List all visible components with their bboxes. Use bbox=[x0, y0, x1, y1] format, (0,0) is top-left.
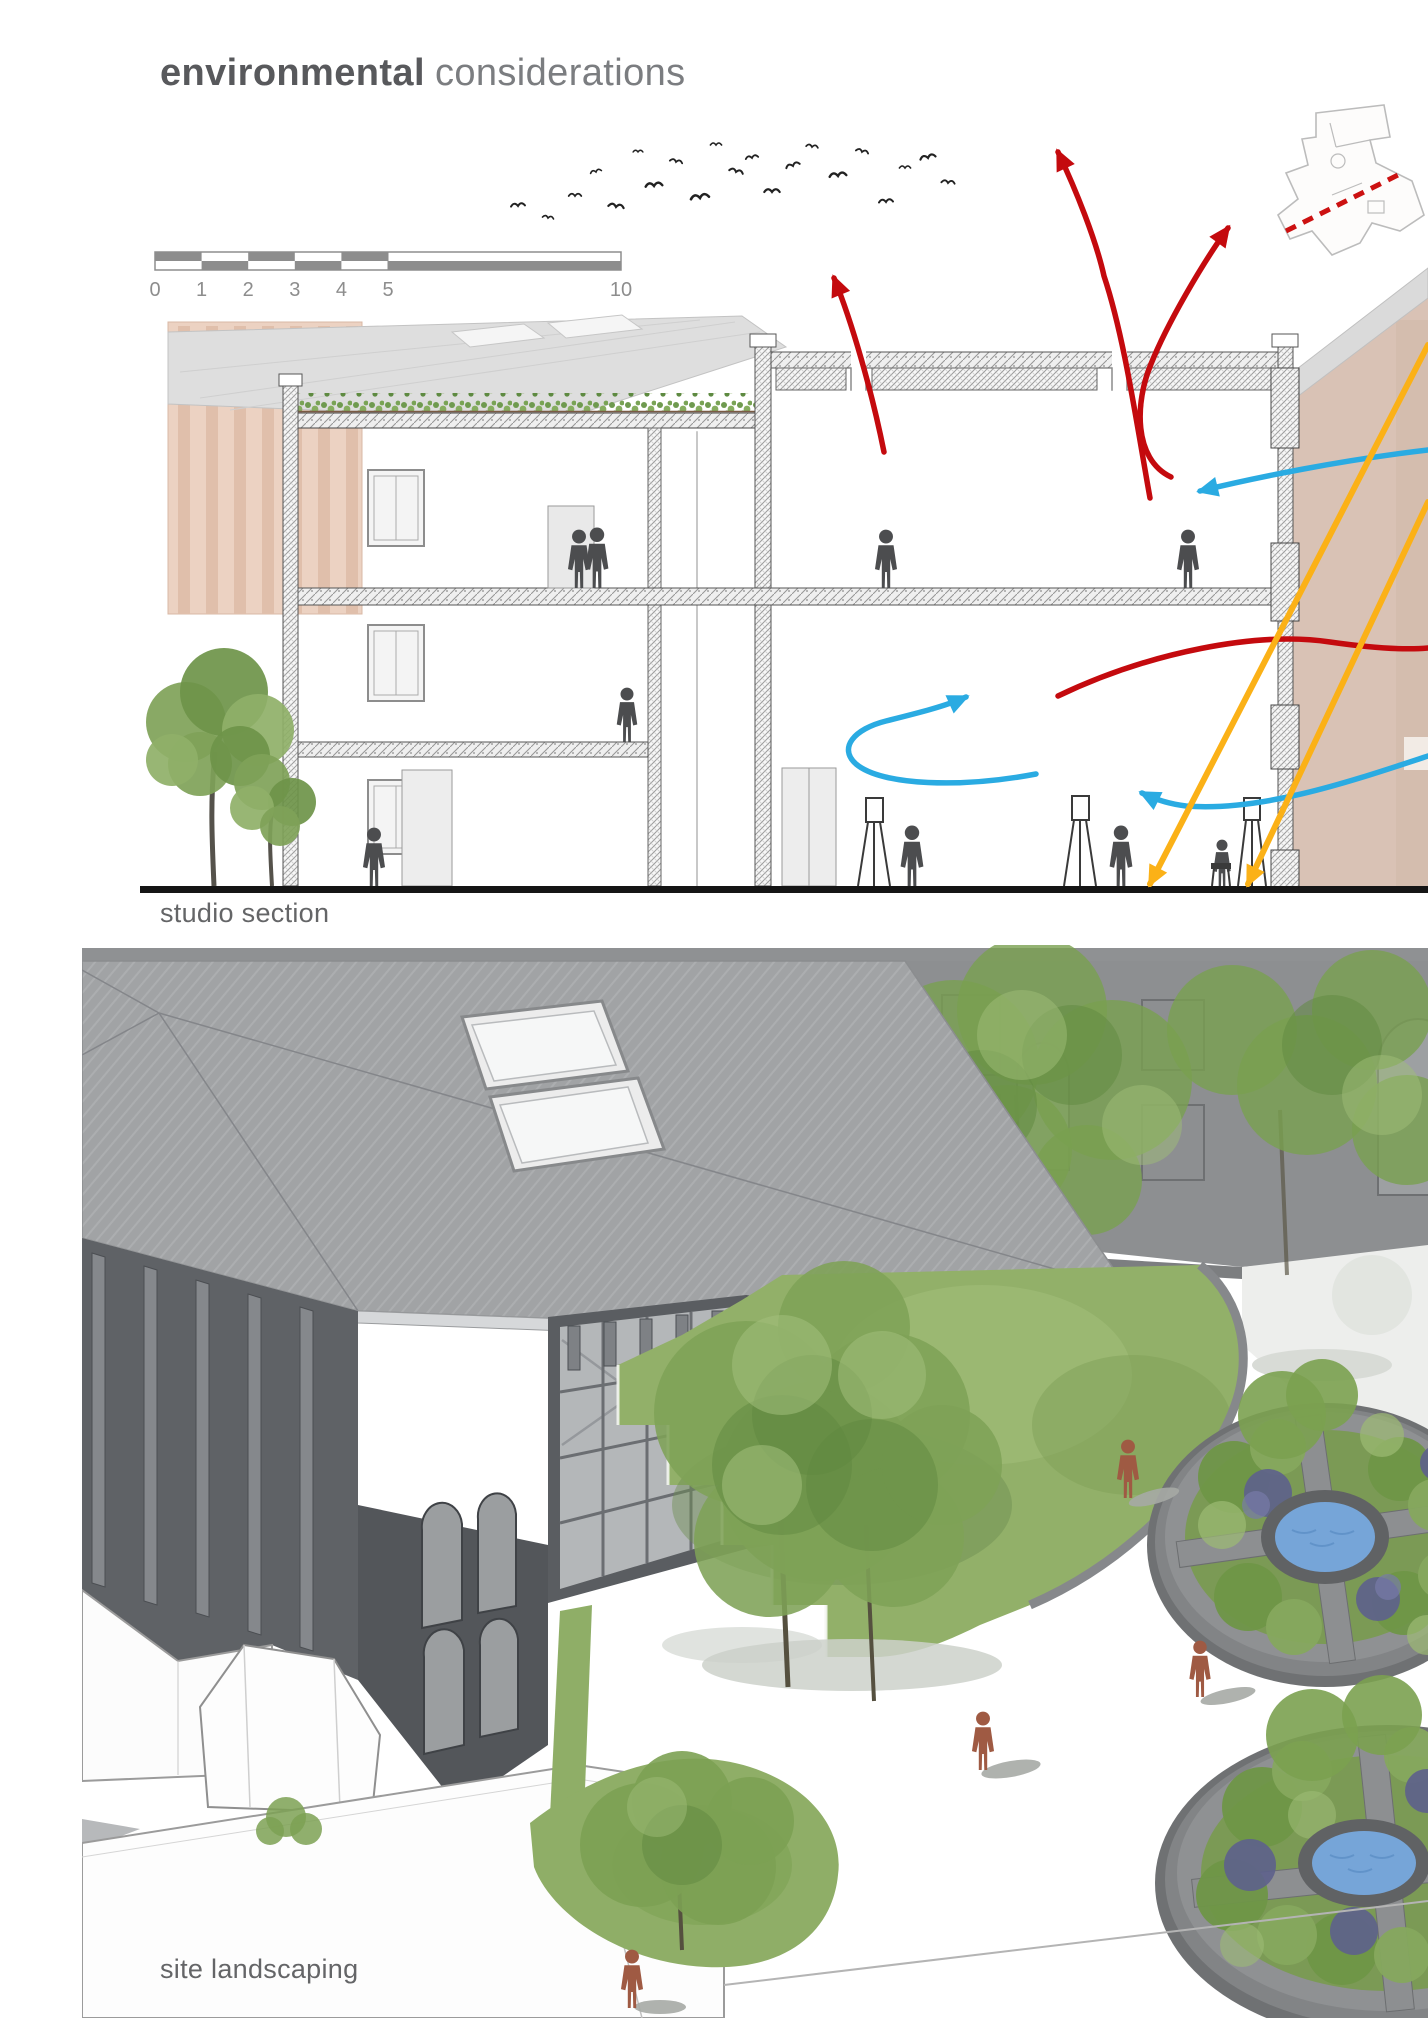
pond-water bbox=[1275, 1502, 1375, 1572]
studio-section-drawing: 0 1 2 3 4 5 10 bbox=[0, 0, 1428, 945]
background-building-right bbox=[1293, 268, 1428, 890]
scale-bar-labels: 0 1 2 3 4 5 10 bbox=[149, 279, 632, 301]
green-roof bbox=[298, 393, 756, 412]
scale-label: 5 bbox=[382, 279, 393, 301]
scale-label: 1 bbox=[196, 279, 207, 301]
scale-label: 4 bbox=[336, 279, 347, 301]
circular-garden bbox=[1155, 1675, 1428, 2018]
floor-slab bbox=[298, 588, 1283, 605]
easels bbox=[858, 796, 1266, 886]
render-top-edge bbox=[82, 948, 1428, 961]
warm-air-rising-arrow bbox=[1058, 152, 1150, 498]
cool-air-loop-arrow bbox=[848, 697, 1036, 783]
pond-water bbox=[1312, 1831, 1416, 1895]
scale-label: 3 bbox=[289, 279, 300, 301]
ground-line bbox=[140, 886, 1428, 893]
scale-label: 10 bbox=[610, 279, 632, 301]
scale-label: 2 bbox=[243, 279, 254, 301]
portfolio-page: environmentalconsiderations bbox=[0, 0, 1428, 2018]
section-building bbox=[279, 334, 1299, 890]
scale-bar: 0 1 2 3 4 5 10 bbox=[149, 252, 632, 301]
landscaping-caption: site landscaping bbox=[160, 1954, 358, 1985]
scale-label: 0 bbox=[149, 279, 160, 301]
key-plan bbox=[1278, 105, 1424, 255]
studio-roof bbox=[771, 349, 1283, 390]
site-landscaping-render bbox=[82, 945, 1428, 2018]
section-caption: studio section bbox=[160, 898, 329, 929]
floor-slab bbox=[298, 742, 648, 757]
birds bbox=[511, 143, 955, 219]
